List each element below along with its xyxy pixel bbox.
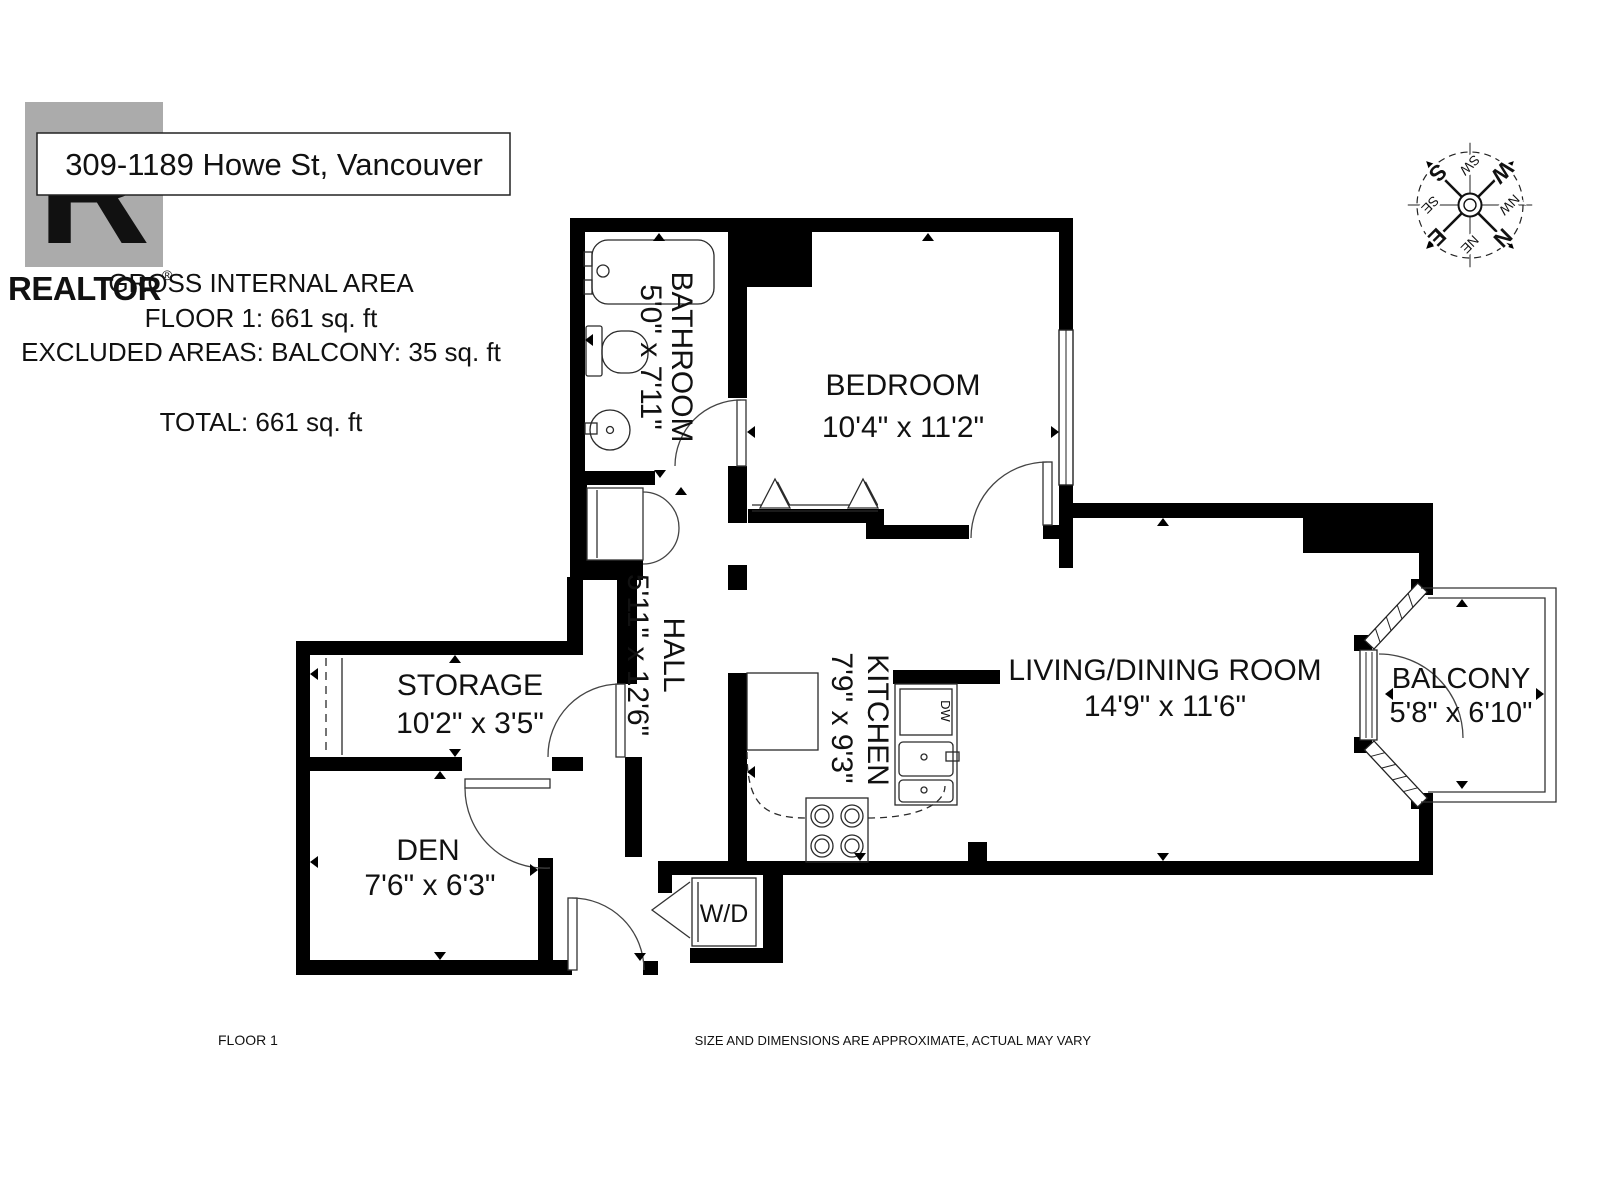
bedroom-window xyxy=(1059,330,1073,485)
bedroom-door xyxy=(971,462,1052,538)
storage-closet-rail xyxy=(326,658,342,755)
den-door xyxy=(465,779,550,868)
floorplan-page: R REALTOR ® 309-1189 Howe St, Vancouver … xyxy=(0,0,1600,1200)
washer-dryer-label: W/D xyxy=(700,900,749,928)
room-dims-balcony: 5'8" x 6'10" xyxy=(1390,697,1533,729)
room-label-living: LIVING/DINING ROOM xyxy=(1008,654,1321,687)
balcony-sliding-door xyxy=(1360,650,1377,740)
hall-closet-bifold-door xyxy=(587,488,679,564)
room-dims-kitchen: 7'9" x 9'3" xyxy=(825,652,858,783)
bathroom-sink-icon xyxy=(585,410,630,450)
footer-disclaimer: SIZE AND DIMENSIONS ARE APPROXIMATE, ACT… xyxy=(695,1033,1092,1048)
room-label-bathroom: BATHROOM xyxy=(665,271,698,442)
compass-nw: NW xyxy=(1496,191,1523,218)
kitchen-counter-edge-dashed xyxy=(747,752,806,818)
address-box: 309-1189 Howe St, Vancouver xyxy=(37,133,510,195)
balcony-bay-window-upper xyxy=(1364,583,1427,649)
room-label-hall: HALL xyxy=(657,617,690,692)
windows xyxy=(1059,330,1427,807)
room-dims-storage: 10'2" x 3'5" xyxy=(396,707,544,740)
dishwasher-label: DW xyxy=(938,700,953,722)
balcony-bay-window-lower xyxy=(1364,741,1427,807)
footer: FLOOR 1 SIZE AND DIMENSIONS ARE APPROXIM… xyxy=(218,1032,1091,1048)
room-dims-bathroom: 5'0" x 7'11" xyxy=(634,284,667,430)
floorplan-canvas: R REALTOR ® 309-1189 Howe St, Vancouver … xyxy=(0,0,1600,1200)
bedroom-closet xyxy=(752,479,878,511)
compass-ne: NE xyxy=(1458,232,1482,256)
area-floor-line: FLOOR 1: 661 sq. ft xyxy=(145,303,378,333)
balcony-railing xyxy=(1421,588,1556,802)
room-dims-bedroom: 10'4" x 11'2" xyxy=(822,411,984,444)
entry-door xyxy=(568,898,644,970)
room-dims-hall: 5'11" x 12'6" xyxy=(621,574,654,736)
room-dims-living: 14'9" x 11'6" xyxy=(1084,690,1246,723)
kitchen-counter-left xyxy=(747,673,818,750)
room-labels: BATHROOM 5'0" x 7'11" BEDROOM 10'4" x 11… xyxy=(364,271,1532,928)
storage-door xyxy=(548,684,625,757)
room-label-kitchen: KITCHEN xyxy=(861,654,894,786)
compass-sw: SW xyxy=(1456,152,1482,178)
footer-floor-label: FLOOR 1 xyxy=(218,1032,278,1048)
room-label-storage: STORAGE xyxy=(397,669,543,702)
room-label-balcony: BALCONY xyxy=(1392,663,1531,695)
area-total-line: TOTAL: 661 sq. ft xyxy=(160,407,364,437)
area-heading: GROSS INTERNAL AREA xyxy=(108,268,414,298)
room-label-den: DEN xyxy=(396,834,459,867)
address-text: 309-1189 Howe St, Vancouver xyxy=(65,147,483,182)
room-label-bedroom: BEDROOM xyxy=(825,369,980,402)
compass-rose: N S E W NE SE SW NW xyxy=(1382,117,1557,292)
stove-icon xyxy=(806,798,868,862)
room-dims-den: 7'6" x 6'3" xyxy=(364,869,495,902)
area-excluded-line: EXCLUDED AREAS: BALCONY: 35 sq. ft xyxy=(21,337,502,367)
compass-se: SE xyxy=(1418,193,1441,216)
